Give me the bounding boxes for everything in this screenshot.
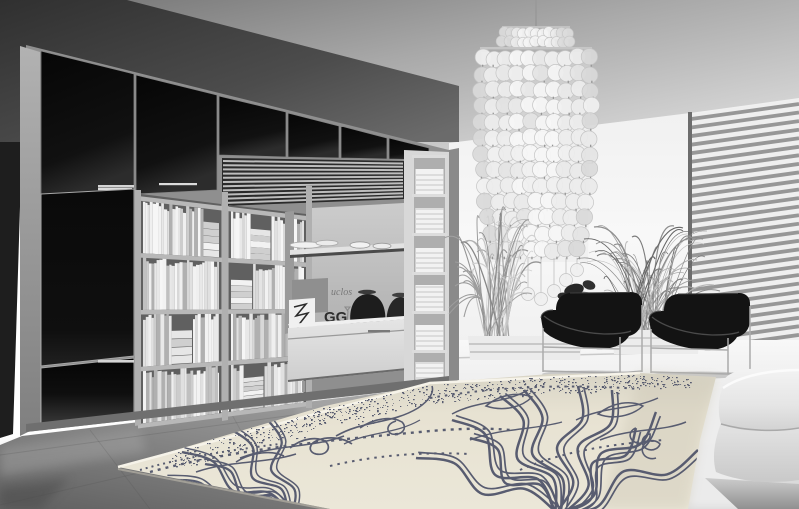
svg-text:uclos: uclos <box>331 287 352 298</box>
